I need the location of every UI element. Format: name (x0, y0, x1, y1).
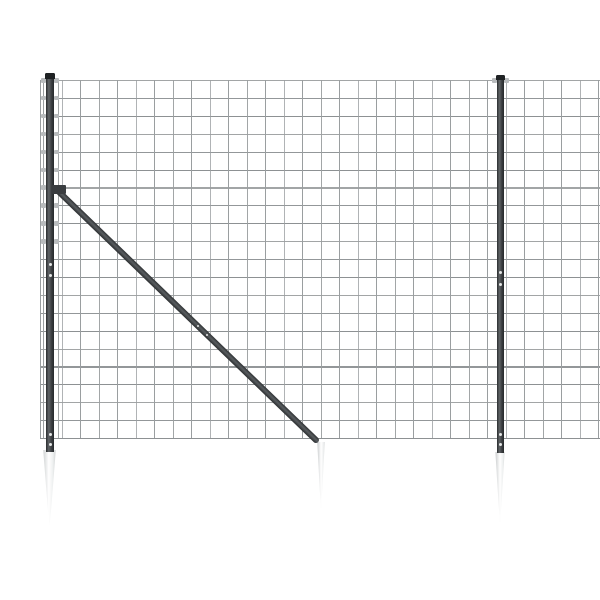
mesh-wire-vertical (376, 80, 377, 438)
wire-clamp (54, 221, 59, 226)
mesh-wire-vertical (598, 80, 599, 438)
wire-clamp (54, 203, 59, 208)
screw-dot (49, 274, 52, 277)
mesh-wire-vertical (228, 80, 229, 438)
mesh-wire-vertical (469, 80, 470, 438)
mesh-wire-vertical (358, 80, 359, 438)
ground-spike-left (42, 450, 57, 525)
fence-post-cap (496, 75, 505, 80)
fence-post-cap (45, 73, 55, 79)
wire-clamp (54, 150, 59, 155)
mesh-wire-vertical (284, 80, 285, 438)
mesh-wire-vertical (210, 80, 211, 438)
screw-dot (499, 443, 502, 446)
mesh-wire-vertical (450, 80, 451, 438)
mesh-wire-vertical (136, 80, 137, 438)
mesh-wire-vertical (265, 80, 266, 438)
diagonal-brace (55, 188, 320, 444)
wire-clamp (54, 96, 59, 101)
mesh-wire-vertical (99, 80, 100, 438)
mesh-wire-vertical (117, 80, 118, 438)
mesh-wire-vertical (395, 80, 396, 438)
mesh-wire-vertical (561, 80, 562, 438)
mesh-wire-vertical (413, 80, 414, 438)
screw-dot (49, 443, 52, 446)
mesh-wire-vertical (80, 80, 81, 438)
brace-bracket (52, 185, 66, 194)
mesh-wire-vertical (487, 80, 488, 438)
product-photo-canvas (0, 0, 600, 600)
mesh-wire-vertical (321, 80, 322, 438)
mesh-wire-vertical (524, 80, 525, 438)
mesh-wire-vertical (247, 80, 248, 438)
screw-dot (499, 433, 502, 436)
screw-dot (499, 271, 502, 274)
mesh-wire-vertical (543, 80, 544, 438)
screw-dot (499, 283, 502, 286)
mesh-wire-vertical (339, 80, 340, 438)
wire-clamp (54, 132, 59, 137)
mesh-wire-vertical (580, 80, 581, 438)
ground-spike-right (495, 452, 506, 522)
mesh-wire-horizontal (40, 438, 600, 439)
screw-dot (49, 433, 52, 436)
mesh-wire-vertical (191, 80, 192, 438)
wire-clamp (54, 239, 59, 244)
wire-clamp (54, 168, 59, 173)
ground-spike-middle (317, 442, 326, 508)
mesh-wire-vertical (302, 80, 303, 438)
mesh-wire-vertical (62, 80, 63, 438)
mesh-wire-vertical (173, 80, 174, 438)
fence-post-right (497, 75, 504, 453)
screw-dot (49, 263, 52, 266)
wire-clamp (54, 114, 59, 119)
mesh-wire-vertical (154, 80, 155, 438)
mesh-wire-vertical (506, 80, 507, 438)
mesh-wire-vertical (432, 80, 433, 438)
